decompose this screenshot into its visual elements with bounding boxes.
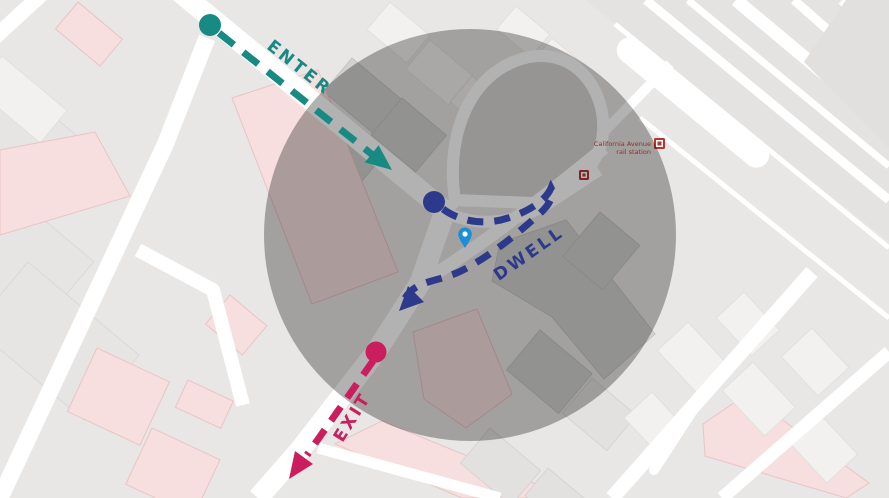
enter-start-dot <box>199 14 221 36</box>
map-screenshot: California Avenue rail station ENTER DWE… <box>0 0 889 498</box>
dwell-start-dot <box>423 191 445 213</box>
pin-center-dot <box>462 231 467 236</box>
exit-start-dot <box>366 342 387 363</box>
map-canvas: California Avenue rail station ENTER DWE… <box>0 0 889 498</box>
